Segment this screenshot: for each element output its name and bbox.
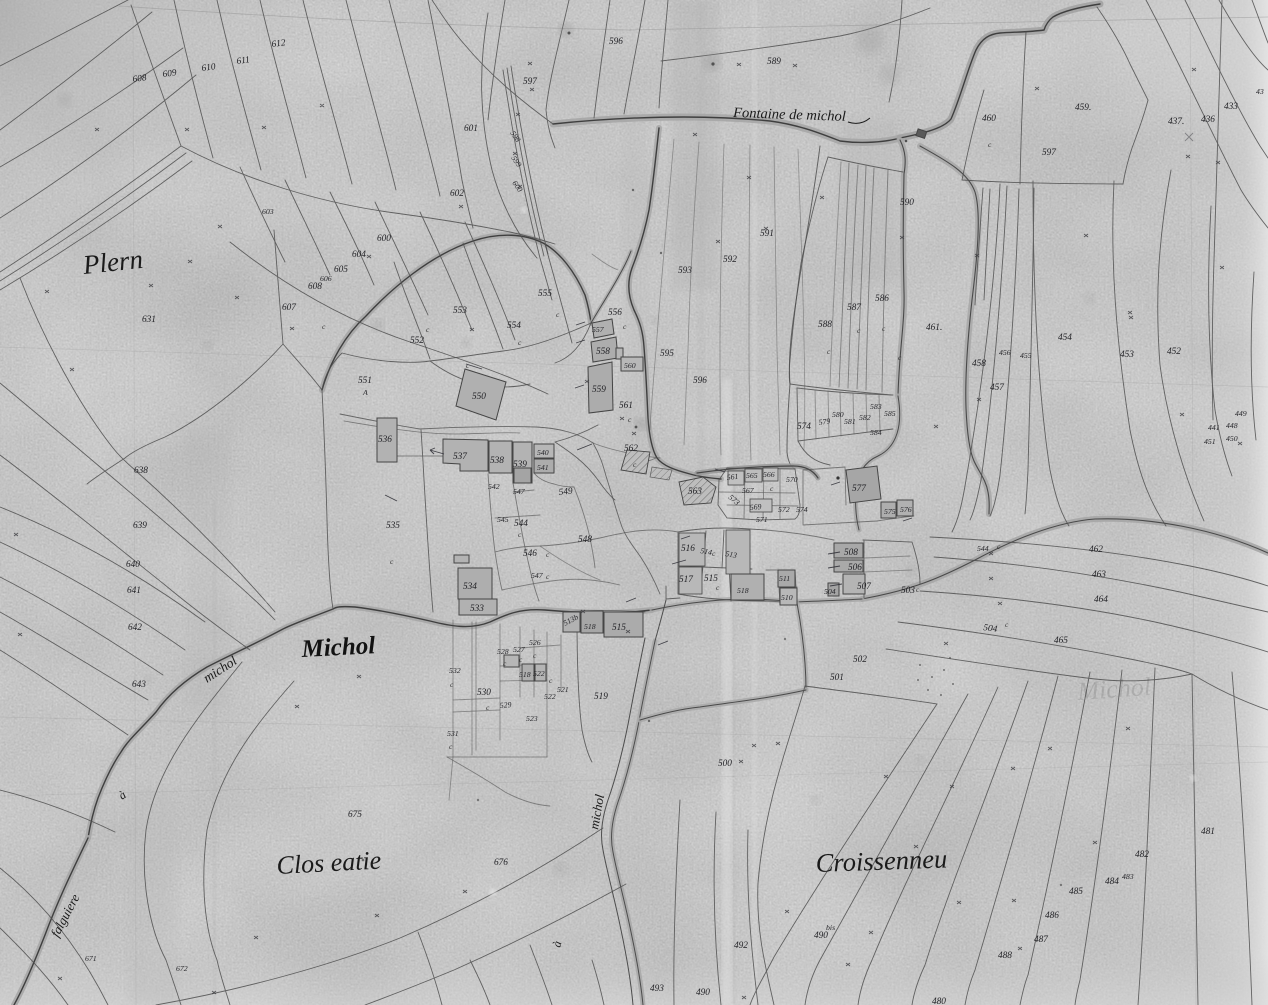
svg-text:548: 548	[578, 535, 592, 545]
svg-text:465: 465	[1054, 636, 1068, 646]
svg-text:583: 583	[870, 402, 882, 411]
svg-text:612: 612	[271, 38, 287, 50]
svg-text:582: 582	[859, 413, 871, 422]
svg-text:597: 597	[1042, 148, 1056, 158]
svg-text:522: 522	[533, 669, 545, 678]
svg-text:501: 501	[830, 673, 844, 683]
svg-text:576: 576	[900, 505, 912, 514]
svg-text:537: 537	[453, 452, 467, 462]
svg-text:610: 610	[201, 62, 217, 74]
svg-text:588: 588	[818, 320, 832, 330]
svg-text:484: 484	[1105, 877, 1119, 887]
svg-text:43: 43	[1256, 87, 1264, 96]
svg-text:550: 550	[472, 392, 486, 402]
svg-text:596: 596	[693, 376, 707, 386]
svg-text:518: 518	[737, 586, 749, 595]
svg-text:584: 584	[870, 428, 882, 437]
svg-text:488: 488	[998, 951, 1012, 961]
svg-text:546: 546	[523, 549, 537, 559]
svg-text:585: 585	[884, 409, 896, 418]
svg-text:529: 529	[499, 700, 512, 710]
svg-text:563: 563	[688, 487, 702, 497]
svg-text:572: 572	[778, 505, 790, 514]
svg-text:604: 604	[352, 250, 366, 260]
svg-text:586: 586	[875, 294, 889, 304]
svg-text:536: 536	[378, 435, 392, 445]
svg-text:503: 503	[901, 586, 915, 596]
svg-text:527: 527	[513, 645, 526, 654]
svg-text:579: 579	[818, 416, 831, 427]
svg-text:562: 562	[624, 444, 638, 454]
svg-text:640: 640	[126, 560, 140, 570]
svg-text:581: 581	[844, 417, 856, 426]
svg-text:Clos eatie: Clos eatie	[276, 846, 382, 880]
svg-text:528: 528	[497, 647, 509, 656]
svg-text:448: 448	[1226, 421, 1238, 430]
svg-text:561: 561	[726, 472, 739, 482]
svg-text:547: 547	[531, 571, 544, 580]
svg-text:638: 638	[134, 466, 148, 476]
svg-text:541: 541	[537, 463, 549, 472]
svg-text:436: 436	[1201, 115, 1215, 125]
svg-text:577: 577	[852, 484, 866, 494]
svg-text:575: 575	[884, 507, 896, 516]
svg-text:450: 450	[1226, 434, 1238, 443]
svg-text:557: 557	[592, 325, 605, 334]
svg-text:504: 504	[983, 623, 999, 635]
svg-text:609: 609	[162, 68, 178, 80]
svg-text:535: 535	[386, 521, 400, 531]
svg-text:492: 492	[734, 941, 748, 951]
svg-text:482: 482	[1135, 850, 1149, 860]
svg-text:641: 641	[127, 586, 141, 596]
svg-text:607: 607	[282, 303, 296, 313]
svg-text:587: 587	[847, 303, 861, 313]
svg-text:490: 490	[814, 931, 828, 941]
svg-text:437.: 437.	[1168, 117, 1184, 127]
svg-text:456: 456	[999, 348, 1011, 357]
svg-text:597: 597	[523, 77, 537, 87]
svg-text:591: 591	[760, 229, 774, 239]
svg-text:458: 458	[972, 359, 986, 369]
svg-text:602: 602	[450, 189, 464, 199]
svg-text:596: 596	[609, 37, 623, 47]
svg-text:560: 560	[624, 361, 636, 370]
svg-text:639: 639	[133, 521, 147, 531]
svg-text:515: 515	[612, 623, 626, 633]
svg-text:538: 538	[490, 456, 504, 466]
svg-text:558: 558	[596, 347, 610, 357]
svg-text:566: 566	[763, 470, 775, 479]
svg-text:559: 559	[592, 385, 606, 395]
svg-text:485: 485	[1069, 887, 1083, 897]
svg-text:483: 483	[1122, 872, 1134, 881]
svg-text:544: 544	[514, 519, 528, 529]
svg-text:487: 487	[1034, 935, 1048, 945]
svg-text:502: 502	[853, 655, 867, 665]
svg-text:490: 490	[696, 988, 710, 998]
svg-text:554: 554	[507, 321, 521, 331]
svg-text:676: 676	[494, 858, 508, 868]
svg-text:462: 462	[1089, 545, 1103, 555]
svg-text:567: 567	[742, 486, 755, 495]
svg-text:542: 542	[488, 482, 500, 491]
svg-text:511: 511	[779, 574, 790, 583]
svg-text:642: 642	[128, 623, 142, 633]
svg-text:574: 574	[796, 505, 808, 514]
svg-text:518: 518	[519, 670, 531, 679]
svg-text:592: 592	[723, 255, 737, 265]
svg-text:516: 516	[681, 544, 695, 554]
svg-text:631: 631	[142, 315, 156, 325]
svg-text:Michol: Michol	[300, 632, 376, 663]
svg-text:553: 553	[453, 306, 467, 316]
svg-text:539: 539	[513, 460, 527, 470]
svg-text:510: 510	[781, 593, 793, 602]
svg-text:522: 522	[544, 692, 556, 701]
svg-text:565: 565	[746, 471, 758, 480]
svg-text:460: 460	[982, 114, 996, 124]
svg-text:441: 441	[1208, 423, 1220, 432]
svg-text:549: 549	[558, 487, 573, 498]
svg-text:518: 518	[584, 622, 596, 631]
svg-text:605: 605	[334, 265, 348, 275]
svg-text:533: 533	[470, 604, 484, 614]
svg-text:464: 464	[1094, 595, 1108, 605]
svg-text:493: 493	[650, 984, 664, 994]
svg-text:608: 608	[132, 73, 148, 85]
svg-text:517: 517	[679, 575, 693, 585]
svg-text:547: 547	[513, 487, 526, 496]
svg-text:570: 570	[786, 475, 798, 484]
svg-text:455: 455	[1020, 351, 1032, 360]
svg-text:Michol: Michol	[1075, 672, 1151, 706]
svg-text:603: 603	[262, 207, 274, 216]
svg-text:569: 569	[749, 502, 762, 512]
svg-text:571: 571	[756, 515, 768, 524]
svg-text:506: 506	[848, 563, 862, 573]
svg-text:508: 508	[844, 548, 858, 558]
svg-text:580: 580	[832, 410, 844, 419]
svg-text:534: 534	[463, 582, 477, 592]
svg-text:Croissenneu: Croissenneu	[815, 843, 947, 878]
svg-text:459.: 459.	[1075, 103, 1091, 113]
svg-text:500: 500	[718, 759, 732, 769]
svg-text:595: 595	[660, 349, 674, 359]
svg-text:451: 451	[1204, 437, 1216, 446]
svg-text:555: 555	[538, 289, 552, 299]
svg-text:A: A	[362, 388, 368, 397]
svg-text:551: 551	[358, 376, 372, 386]
svg-text:671: 671	[85, 954, 97, 963]
svg-text:Plern: Plern	[80, 244, 144, 280]
svg-text:521: 521	[557, 685, 569, 694]
svg-text:600: 600	[377, 234, 391, 244]
svg-text:454: 454	[1058, 333, 1072, 343]
svg-text:556: 556	[608, 308, 622, 318]
svg-text:574: 574	[797, 422, 811, 432]
svg-text:561: 561	[619, 401, 633, 411]
svg-text:452: 452	[1167, 347, 1181, 357]
svg-text:611: 611	[236, 55, 251, 67]
svg-text:bis: bis	[826, 923, 835, 932]
svg-text:608: 608	[308, 282, 322, 292]
svg-text:590: 590	[900, 198, 914, 208]
svg-text:672: 672	[176, 964, 188, 973]
svg-text:531: 531	[447, 729, 459, 738]
svg-text:449: 449	[1235, 409, 1247, 418]
svg-text:481: 481	[1201, 827, 1215, 837]
svg-text:552: 552	[410, 336, 424, 346]
svg-text:675: 675	[348, 810, 362, 820]
svg-text:453: 453	[1120, 350, 1134, 360]
svg-text:593: 593	[678, 266, 692, 276]
svg-text:540: 540	[537, 448, 549, 457]
svg-text:530: 530	[477, 688, 491, 698]
svg-text:507: 507	[857, 582, 871, 592]
svg-text:544: 544	[977, 544, 989, 553]
svg-text:532: 532	[449, 666, 461, 675]
svg-text:526: 526	[529, 638, 541, 647]
svg-text:433: 433	[1224, 102, 1238, 112]
svg-text:461.: 461.	[926, 323, 942, 333]
svg-text:463: 463	[1092, 570, 1106, 580]
svg-text:480: 480	[932, 997, 946, 1005]
svg-text:457: 457	[990, 383, 1004, 393]
svg-text:545: 545	[497, 515, 509, 524]
svg-text:523: 523	[526, 714, 538, 723]
svg-text:589: 589	[767, 57, 781, 67]
svg-text:601: 601	[464, 124, 478, 134]
svg-text:519: 519	[594, 692, 608, 702]
svg-text:486: 486	[1045, 911, 1059, 921]
svg-text:504: 504	[824, 587, 836, 596]
